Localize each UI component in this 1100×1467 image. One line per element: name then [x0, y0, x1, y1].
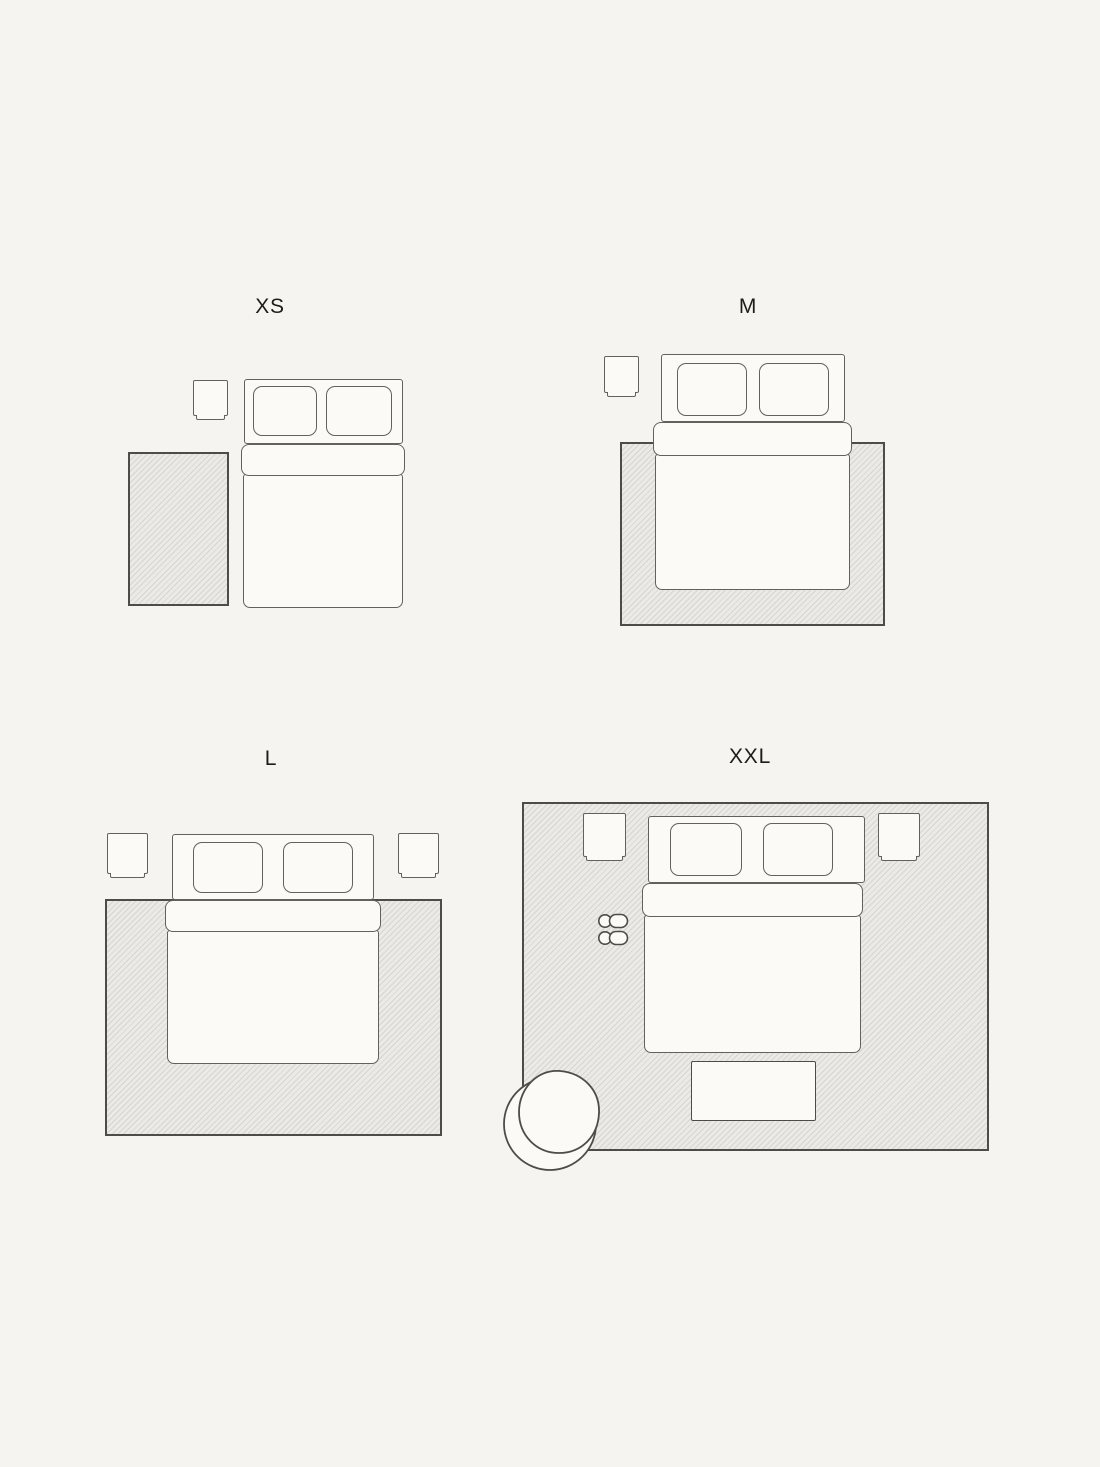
nightstand-right: [398, 833, 439, 874]
pillow-left: [677, 363, 747, 416]
nightstand-base: [607, 392, 636, 397]
nightstand: [604, 356, 639, 393]
nightstand-base: [110, 873, 145, 878]
pillow-right: [326, 386, 392, 436]
pillow-right: [283, 842, 353, 893]
armchair-seat: [519, 1071, 599, 1153]
nightstand-left: [107, 833, 148, 874]
panel-xs: XS: [100, 290, 450, 620]
nightstand-left: [583, 813, 626, 857]
size-label-m: M: [739, 295, 757, 319]
slipper-toe: [610, 932, 628, 945]
panel-xxl: XXL: [490, 730, 1010, 1190]
panel-l: L: [80, 730, 460, 1150]
pillow-right: [759, 363, 829, 416]
pillow-right: [763, 823, 833, 876]
bench: [691, 1061, 816, 1121]
nightstand-base: [586, 856, 623, 861]
size-label-xs: XS: [255, 295, 285, 319]
pillow-left: [253, 386, 317, 436]
bed-sheet-fold: [642, 883, 863, 917]
bed-duvet: [243, 474, 403, 608]
bed-duvet: [167, 930, 379, 1064]
nightstand: [193, 380, 228, 416]
slippers-icon: [596, 911, 636, 949]
bed-duvet: [644, 915, 861, 1053]
rug-size-guide-diagram: XS M L XXL: [0, 0, 1100, 1467]
armchair-icon: [500, 1064, 605, 1176]
panel-m: M: [580, 290, 910, 640]
bed-duvet: [655, 454, 850, 590]
pillow-left: [193, 842, 263, 893]
nightstand-base: [401, 873, 436, 878]
rug-xs: [128, 452, 229, 606]
size-label-l: L: [265, 747, 277, 771]
bed-sheet-fold: [653, 422, 852, 456]
nightstand-base: [881, 856, 917, 861]
bed-sheet-fold: [165, 900, 381, 932]
nightstand-base: [196, 415, 225, 420]
nightstand-right: [878, 813, 920, 857]
bed-sheet-fold: [241, 444, 405, 476]
size-label-xxl: XXL: [729, 745, 771, 769]
slipper-toe: [610, 915, 628, 928]
pillow-left: [670, 823, 742, 876]
